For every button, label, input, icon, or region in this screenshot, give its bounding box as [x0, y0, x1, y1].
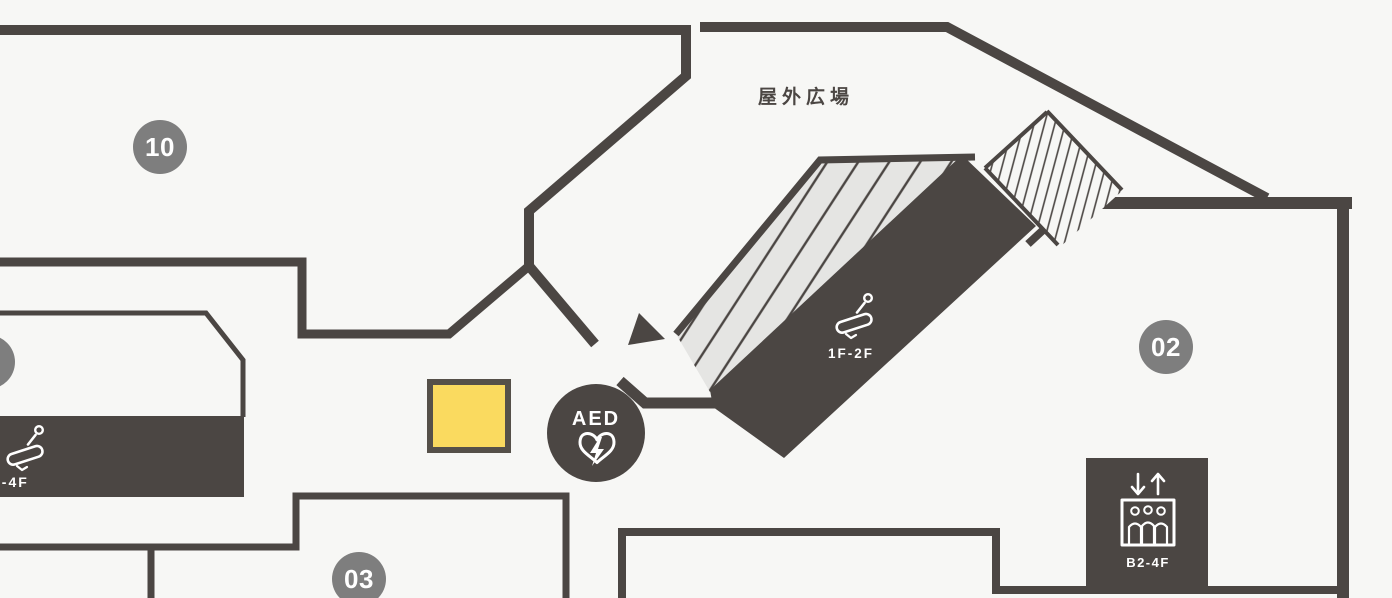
- room-badge-label: 02: [1151, 332, 1181, 362]
- highlighted-location[interactable]: [430, 382, 508, 450]
- elevator-label: B2-4F: [1126, 555, 1170, 570]
- room-badge-label: 03: [344, 564, 374, 594]
- escalator-center-label: 1F-2F: [828, 346, 874, 361]
- room-badge-02[interactable]: 02: [1139, 320, 1193, 374]
- elevator-area[interactable]: B2-4F: [1086, 458, 1208, 588]
- escalator-left-label: 2-4F: [0, 474, 29, 490]
- room-badge-label: 10: [145, 132, 175, 162]
- floor-map-page: 2-4F 1F-2F AED B2-4F: [0, 0, 1392, 598]
- aed-marker-circle[interactable]: [547, 384, 645, 482]
- aed-label: AED: [572, 408, 620, 430]
- room-badge-10[interactable]: 10: [133, 120, 187, 174]
- floor-map-canvas: 2-4F 1F-2F AED B2-4F: [0, 0, 1392, 598]
- outdoor-plaza-label: 屋外広場: [758, 85, 854, 108]
- aed-marker[interactable]: AED: [547, 384, 645, 482]
